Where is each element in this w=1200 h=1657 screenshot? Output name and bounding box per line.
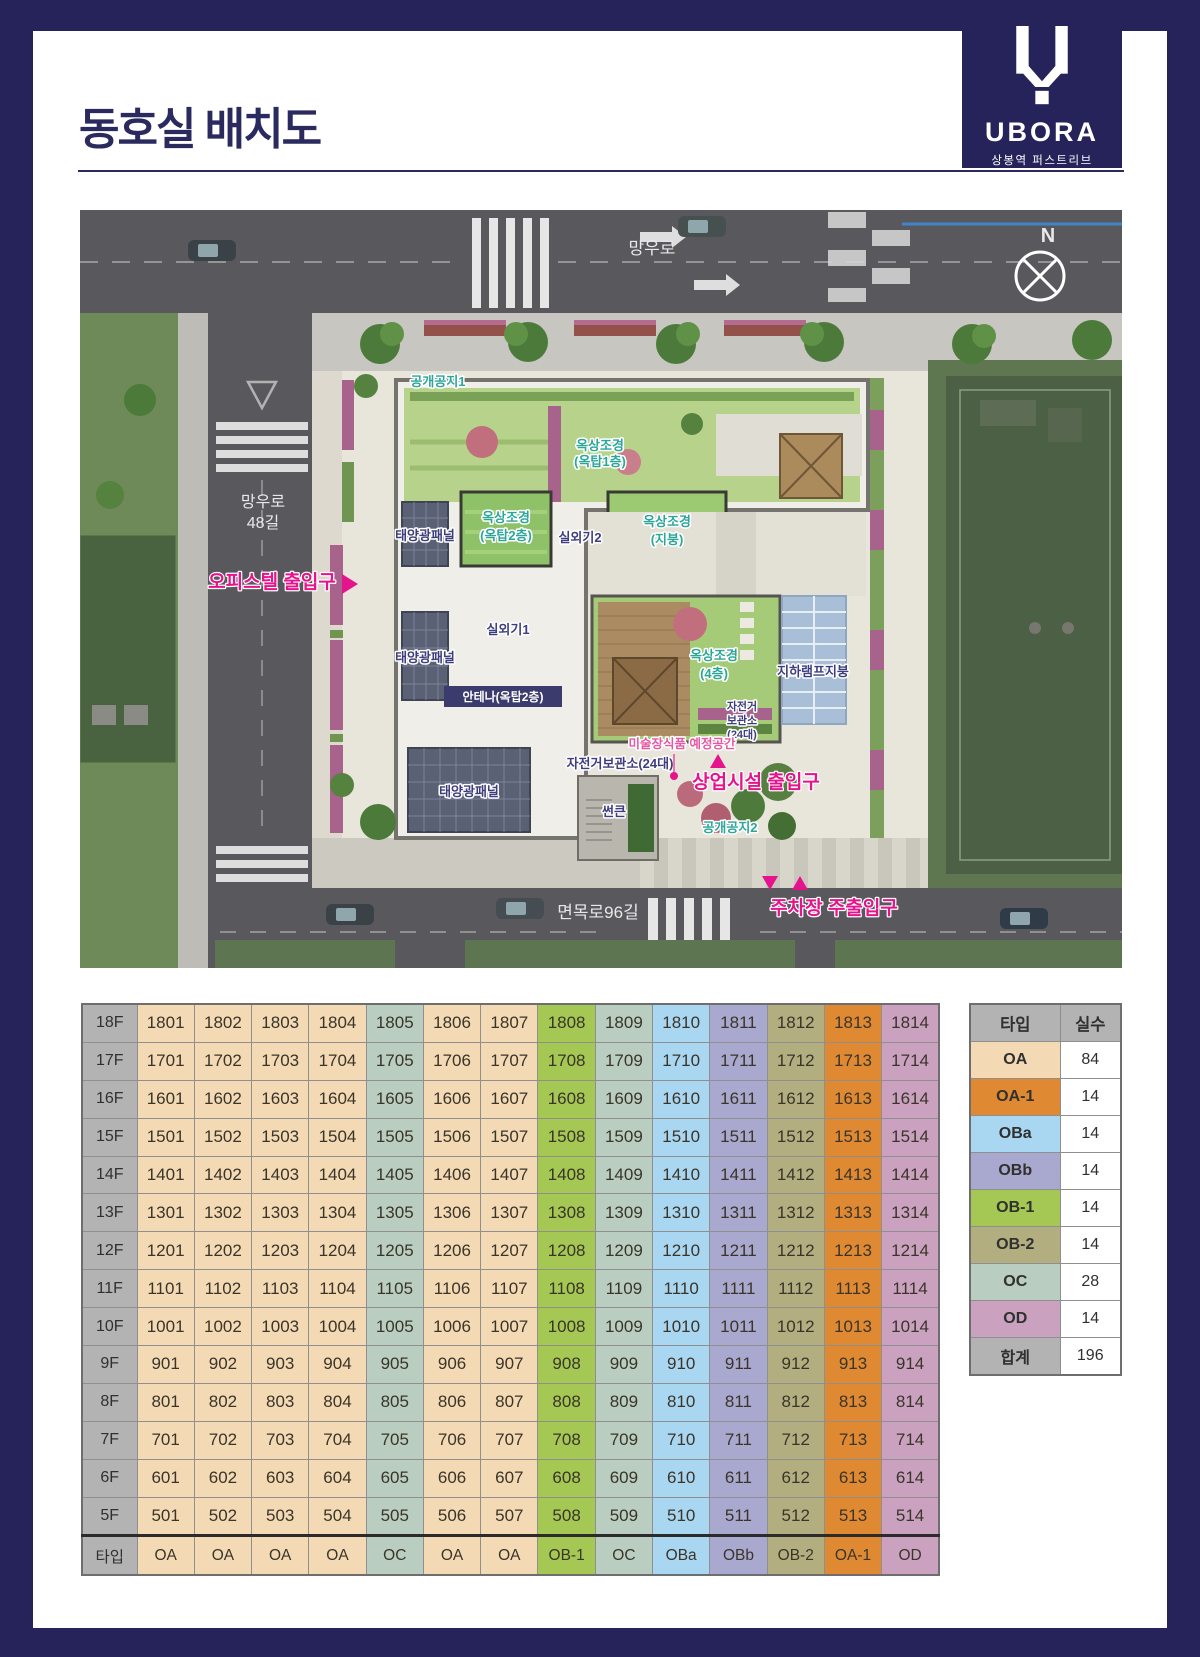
unit-cell: 1713: [824, 1042, 881, 1080]
unit-cell: 1401: [137, 1156, 194, 1194]
label-ac-unit-2: 실외기2: [558, 530, 601, 545]
unit-cell: 708: [538, 1421, 595, 1459]
unit-cell: 1302: [194, 1194, 251, 1232]
unit-cell: 1104: [309, 1270, 366, 1308]
unit-cell: 1808: [538, 1004, 595, 1042]
car: [188, 240, 236, 261]
legend-header-row: 타입 실수: [970, 1004, 1121, 1042]
legend-count-cell: 196: [1060, 1338, 1121, 1376]
unit-cell: 1509: [595, 1118, 652, 1156]
legend-row: OD14: [970, 1301, 1121, 1338]
label-roofgarden-4f-1: 옥상조경: [690, 648, 738, 663]
car: [326, 904, 374, 925]
unit-cell: 914: [882, 1346, 939, 1384]
unit-cell: 1106: [423, 1270, 480, 1308]
legend-row: 합계196: [970, 1338, 1121, 1376]
unit-cell: 807: [481, 1383, 538, 1421]
label-roofgarden-oktap1-2: (옥탑1층): [574, 454, 626, 469]
unit-cell: 1204: [309, 1232, 366, 1270]
unit-cell: 1603: [252, 1080, 309, 1118]
unit-cell: 502: [194, 1497, 251, 1536]
unit-cell: 1707: [481, 1042, 538, 1080]
floor-row: 17F1701170217031704170517061707170817091…: [82, 1042, 939, 1080]
legend-table-body: OA84OA-114OBa14OBb14OB-114OB-214OC28OD14…: [970, 1042, 1121, 1376]
unit-cell: 1314: [882, 1194, 939, 1232]
unit-cell: 1701: [137, 1042, 194, 1080]
unit-cell: 1205: [366, 1232, 423, 1270]
floor-label-cell: 6F: [82, 1459, 137, 1497]
unit-cell: 904: [309, 1346, 366, 1384]
label-parking-entrance: 주차장 주출입구: [770, 897, 898, 919]
unit-cell: 613: [824, 1459, 881, 1497]
car: [496, 898, 544, 919]
unit-table-body: 18F1801180218031804180518061807180818091…: [82, 1004, 939, 1575]
unit-cell: 503: [252, 1497, 309, 1536]
unit-cell: 1803: [252, 1004, 309, 1042]
label-roofgarden-roof-1: 옥상조경: [643, 514, 691, 529]
unit-cell: 504: [309, 1497, 366, 1536]
column-type-cell: OA: [481, 1536, 538, 1575]
court-left: [80, 535, 176, 763]
unit-cell: 1208: [538, 1232, 595, 1270]
unit-cell: 508: [538, 1497, 595, 1536]
title-underline: [78, 170, 1124, 172]
unit-cell: 1710: [653, 1042, 710, 1080]
unit-cell: 1307: [481, 1194, 538, 1232]
unit-cell: 1207: [481, 1232, 538, 1270]
unit-cell: 703: [252, 1421, 309, 1459]
unit-cell: 506: [423, 1497, 480, 1536]
unit-cell: 711: [710, 1421, 767, 1459]
column-type-cell: OC: [366, 1536, 423, 1575]
road-label-left-2: 48길: [247, 514, 280, 532]
unit-cell: 1109: [595, 1270, 652, 1308]
car: [1000, 908, 1048, 929]
unit-cell: 1511: [710, 1118, 767, 1156]
legend-count-cell: 28: [1060, 1264, 1121, 1301]
unit-cell: 804: [309, 1383, 366, 1421]
floor-row: 7F70170270370470570670770870971071171271…: [82, 1421, 939, 1459]
road-label-bottom: 면목로96길: [557, 903, 638, 922]
legend-count-cell: 84: [1060, 1042, 1121, 1079]
label-solar-1: 태양광패널: [395, 528, 455, 543]
unit-cell: 1308: [538, 1194, 595, 1232]
unit-cell: 707: [481, 1421, 538, 1459]
unit-cell: 1806: [423, 1004, 480, 1042]
unit-cell: 1406: [423, 1156, 480, 1194]
unit-cell: 1705: [366, 1042, 423, 1080]
floor-row: 14F1401140214031404140514061407140814091…: [82, 1156, 939, 1194]
legend-type-cell: OB-1: [970, 1190, 1060, 1227]
art-space-dot: [670, 772, 678, 780]
unit-cell: 602: [194, 1459, 251, 1497]
unit-cell: 811: [710, 1383, 767, 1421]
unit-cell: 1804: [309, 1004, 366, 1042]
road-label-top: 망우로: [629, 239, 676, 258]
floor-label-cell: 9F: [82, 1346, 137, 1384]
column-type-cell: OBb: [710, 1536, 767, 1575]
brochure-page: 동호실 배치도: [0, 0, 1200, 1657]
label-solar-2: 태양광패널: [395, 650, 455, 665]
entrance-paving: [640, 838, 928, 890]
unit-cell: 1108: [538, 1270, 595, 1308]
unit-cell: 801: [137, 1383, 194, 1421]
unit-cell: 1102: [194, 1270, 251, 1308]
legend-row: OBa14: [970, 1116, 1121, 1153]
unit-cell: 1012: [767, 1308, 824, 1346]
unit-cell: 909: [595, 1346, 652, 1384]
unit-cell: 1605: [366, 1080, 423, 1118]
unit-cell: 1508: [538, 1118, 595, 1156]
unit-cell: 1405: [366, 1156, 423, 1194]
unit-cell: 1704: [309, 1042, 366, 1080]
unit-cell: 1610: [653, 1080, 710, 1118]
unit-cell: 601: [137, 1459, 194, 1497]
unit-cell: 902: [194, 1346, 251, 1384]
floor-row: 15F1501150215031504150515061507150815091…: [82, 1118, 939, 1156]
legend-count-cell: 14: [1060, 1190, 1121, 1227]
crosswalk-left-road-2: [216, 846, 308, 882]
floor-label-cell: 16F: [82, 1080, 137, 1118]
unit-cell: 1011: [710, 1308, 767, 1346]
legend-type-cell: OB-2: [970, 1227, 1060, 1264]
column-type-cell: OA: [309, 1536, 366, 1575]
unit-cell: 1001: [137, 1308, 194, 1346]
unit-cell: 510: [653, 1497, 710, 1536]
unit-cell: 1609: [595, 1080, 652, 1118]
unit-cell: 612: [767, 1459, 824, 1497]
unit-cell: 813: [824, 1383, 881, 1421]
type-row: 타입OAOAOAOAOCOAOAOB-1OCOBaOBbOB-2OA-1OD: [82, 1536, 939, 1575]
unit-cell: 1502: [194, 1118, 251, 1156]
unit-cell: 1807: [481, 1004, 538, 1042]
floor-row: 12F1201120212031204120512061207120812091…: [82, 1232, 939, 1270]
unit-cell: 806: [423, 1383, 480, 1421]
column-type-cell: OA: [194, 1536, 251, 1575]
legend-type-cell: OBa: [970, 1116, 1060, 1153]
unit-cell: 605: [366, 1459, 423, 1497]
hedge-strip-right: [870, 378, 884, 838]
floor-row: 18F1801180218031804180518061807180818091…: [82, 1004, 939, 1042]
label-roofgarden-4f-2: (4층): [700, 666, 728, 681]
floor-label-cell: 17F: [82, 1042, 137, 1080]
label-public-space-2: 공개공지2: [702, 820, 757, 835]
unit-cell: 1814: [882, 1004, 939, 1042]
unit-cell: 1712: [767, 1042, 824, 1080]
unit-cell: 1809: [595, 1004, 652, 1042]
legend-row: OC28: [970, 1264, 1121, 1301]
unit-cell: 1112: [767, 1270, 824, 1308]
unit-cell: 1007: [481, 1308, 538, 1346]
legend-count-cell: 14: [1060, 1116, 1121, 1153]
unit-cell: 1606: [423, 1080, 480, 1118]
unit-cell: 1303: [252, 1194, 309, 1232]
unit-cell: 1202: [194, 1232, 251, 1270]
legend-header-count: 실수: [1060, 1004, 1121, 1042]
unit-cell: 1002: [194, 1308, 251, 1346]
unit-cell: 911: [710, 1346, 767, 1384]
unit-cell: 1301: [137, 1194, 194, 1232]
unit-cell: 1105: [366, 1270, 423, 1308]
unit-cell: 1003: [252, 1308, 309, 1346]
unit-cell: 1111: [710, 1270, 767, 1308]
floor-row: 6F60160260360460560660760860961061161261…: [82, 1459, 939, 1497]
unit-cell: 1507: [481, 1118, 538, 1156]
site-plan-map: N 망우로 망우로 48길 면목로96길 공개공지1 옥상조경 (옥탑1층) 옥…: [80, 210, 1122, 968]
unit-cell: 505: [366, 1497, 423, 1536]
unit-cell: 1504: [309, 1118, 366, 1156]
courtyard-stripe: [716, 512, 756, 596]
floor-label-cell: 18F: [82, 1004, 137, 1042]
column-type-cell: OBa: [653, 1536, 710, 1575]
unit-cell: 1812: [767, 1004, 824, 1042]
unit-cell: 1311: [710, 1194, 767, 1232]
unit-cell: 1613: [824, 1080, 881, 1118]
unit-cell: 907: [481, 1346, 538, 1384]
floor-row: 11F1101110211031104110511061107110811091…: [82, 1270, 939, 1308]
unit-cell: 512: [767, 1497, 824, 1536]
unit-cell: 1107: [481, 1270, 538, 1308]
unit-cell: 1801: [137, 1004, 194, 1042]
field-dot: [1029, 622, 1041, 634]
unit-cell: 1410: [653, 1156, 710, 1194]
unit-cell: 705: [366, 1421, 423, 1459]
column-type-cell: OD: [882, 1536, 939, 1575]
unit-cell: 1103: [252, 1270, 309, 1308]
sidewalk-left: [178, 313, 208, 968]
unit-cell: 1114: [882, 1270, 939, 1308]
label-art-space: 미술장식품 예정공간: [629, 736, 736, 751]
legend-header-type: 타입: [970, 1004, 1060, 1042]
unit-cell: 1409: [595, 1156, 652, 1194]
unit-cell: 1414: [882, 1156, 939, 1194]
label-bike-storage-2-2: 보관소: [727, 713, 757, 727]
unit-cell: 1411: [710, 1156, 767, 1194]
car: [678, 216, 726, 237]
unit-cell: 1101: [137, 1270, 194, 1308]
label-sunken: 썬큰: [602, 804, 626, 819]
unit-cell: 710: [653, 1421, 710, 1459]
unit-cell: 1404: [309, 1156, 366, 1194]
label-ramp-roof: 지하램프지붕: [777, 664, 849, 679]
label-retail-entrance: 상업시설 출입구: [692, 771, 820, 793]
column-type-cell: OB-2: [767, 1536, 824, 1575]
unit-cell: 1503: [252, 1118, 309, 1156]
unit-cell: 1706: [423, 1042, 480, 1080]
unit-cell: 802: [194, 1383, 251, 1421]
unit-cell: 1305: [366, 1194, 423, 1232]
unit-cell: 908: [538, 1346, 595, 1384]
unit-cell: 1702: [194, 1042, 251, 1080]
brand-logo-box: UBORA 상봉역 퍼스트리브: [962, 0, 1122, 168]
unit-cell: 1009: [595, 1308, 652, 1346]
unit-cell: 809: [595, 1383, 652, 1421]
unit-cell: 1004: [309, 1308, 366, 1346]
unit-cell: 1711: [710, 1042, 767, 1080]
unit-cell: 1611: [710, 1080, 767, 1118]
floor-row: 13F1301130213031304130513061307130813091…: [82, 1194, 939, 1232]
floor-label-cell: 12F: [82, 1232, 137, 1270]
unit-cell: 1210: [653, 1232, 710, 1270]
unit-cell: 1612: [767, 1080, 824, 1118]
unit-cell: 1209: [595, 1232, 652, 1270]
unit-cell: 1214: [882, 1232, 939, 1270]
unit-cell: 1811: [710, 1004, 767, 1042]
legend-count-cell: 14: [1060, 1301, 1121, 1338]
unit-cell: 1604: [309, 1080, 366, 1118]
floor-label-cell: 10F: [82, 1308, 137, 1346]
column-type-cell: OA-1: [824, 1536, 881, 1575]
unit-cell: 808: [538, 1383, 595, 1421]
unit-cell: 1802: [194, 1004, 251, 1042]
unit-cell: 901: [137, 1346, 194, 1384]
unit-cell: 1703: [252, 1042, 309, 1080]
road-label-left-1: 망우로: [241, 493, 285, 511]
unit-cell: 906: [423, 1346, 480, 1384]
unit-cell: 1407: [481, 1156, 538, 1194]
unit-cell: 609: [595, 1459, 652, 1497]
legend-type-cell: OA-1: [970, 1079, 1060, 1116]
unit-cell: 1506: [423, 1118, 480, 1156]
legend-row: OA84: [970, 1042, 1121, 1079]
label-roofgarden-oktap2-2: (옥탑2층): [480, 528, 532, 543]
unit-cell: 614: [882, 1459, 939, 1497]
unit-cell: 1602: [194, 1080, 251, 1118]
unit-cell: 1412: [767, 1156, 824, 1194]
unit-cell: 604: [309, 1459, 366, 1497]
floor-row: 16F1601160216031604160516061607160816091…: [82, 1080, 939, 1118]
unit-cell: 1312: [767, 1194, 824, 1232]
brand-name: UBORA: [985, 117, 1099, 148]
column-type-cell: OA: [423, 1536, 480, 1575]
unit-cell: 1601: [137, 1080, 194, 1118]
floor-label-cell: 13F: [82, 1194, 137, 1232]
unit-cell: 810: [653, 1383, 710, 1421]
unit-cell: 1403: [252, 1156, 309, 1194]
legend-row: OB-114: [970, 1190, 1121, 1227]
unit-cell: 1607: [481, 1080, 538, 1118]
unit-cell: 1813: [824, 1004, 881, 1042]
unit-cell: 1212: [767, 1232, 824, 1270]
ubora-logo-icon: [1014, 26, 1070, 108]
legend-type-cell: OD: [970, 1301, 1060, 1338]
unit-cell: 1408: [538, 1156, 595, 1194]
unit-cell: 1805: [366, 1004, 423, 1042]
unit-cell: 514: [882, 1497, 939, 1536]
unit-cell: 606: [423, 1459, 480, 1497]
unit-cell: 1203: [252, 1232, 309, 1270]
unit-cell: 608: [538, 1459, 595, 1497]
label-ac-unit-1: 실외기1: [486, 622, 529, 637]
unit-cell: 814: [882, 1383, 939, 1421]
unit-cell: 1402: [194, 1156, 251, 1194]
unit-cell: 1514: [882, 1118, 939, 1156]
unit-cell: 1304: [309, 1194, 366, 1232]
field-equipment: [1048, 408, 1082, 442]
unit-cell: 713: [824, 1421, 881, 1459]
unit-cell: 1614: [882, 1080, 939, 1118]
unit-cell: 509: [595, 1497, 652, 1536]
label-solar-3: 태양광패널: [439, 784, 499, 799]
unit-cell: 1608: [538, 1080, 595, 1118]
unit-cell: 1013: [824, 1308, 881, 1346]
floor-label-cell: 14F: [82, 1156, 137, 1194]
unit-cell: 1810: [653, 1004, 710, 1042]
north-label: N: [1041, 225, 1055, 247]
label-roofgarden-oktap1-1: 옥상조경: [576, 438, 624, 453]
legend-count-cell: 14: [1060, 1079, 1121, 1116]
unit-cell: 1709: [595, 1042, 652, 1080]
unit-cell: 1309: [595, 1194, 652, 1232]
field-equipment: [980, 400, 1036, 426]
roof-garden-top: [404, 388, 862, 502]
floor-row: 8F80180280380480580680780880981081181281…: [82, 1383, 939, 1421]
legend-count-cell: 14: [1060, 1153, 1121, 1190]
label-roofgarden-roof-2: (지붕): [651, 532, 684, 547]
floor-row: 10F1001100210031004100510061007100810091…: [82, 1308, 939, 1346]
unit-cell: 1014: [882, 1308, 939, 1346]
legend-row: OBb14: [970, 1153, 1121, 1190]
unit-cell: 709: [595, 1421, 652, 1459]
unit-cell: 805: [366, 1383, 423, 1421]
unit-cell: 903: [252, 1346, 309, 1384]
unit-cell: 610: [653, 1459, 710, 1497]
unit-cell: 912: [767, 1346, 824, 1384]
floor-row: 5F50150250350450550650750850951051151251…: [82, 1497, 939, 1536]
unit-cell: 1313: [824, 1194, 881, 1232]
unit-cell: 501: [137, 1497, 194, 1536]
unit-cell: 1512: [767, 1118, 824, 1156]
legend-type-cell: OA: [970, 1042, 1060, 1079]
content-area: 동호실 배치도: [33, 31, 1167, 1628]
unit-cell: 1505: [366, 1118, 423, 1156]
unit-cell: 1201: [137, 1232, 194, 1270]
unit-cell: 910: [653, 1346, 710, 1384]
equipment-box: [92, 705, 116, 725]
unit-cell: 1513: [824, 1118, 881, 1156]
unit-cell: 1708: [538, 1042, 595, 1080]
unit-cell: 1006: [423, 1308, 480, 1346]
unit-cell: 1306: [423, 1194, 480, 1232]
label-roofgarden-oktap2-1: 옥상조경: [482, 510, 530, 525]
brand-subtitle: 상봉역 퍼스트리브: [991, 152, 1092, 168]
type-row-header-cell: 타입: [82, 1536, 137, 1575]
label-officetel-entrance: 오피스텔 출입구: [208, 571, 336, 593]
unit-cell: 507: [481, 1497, 538, 1536]
unit-cell: 603: [252, 1459, 309, 1497]
legend-count-cell: 14: [1060, 1227, 1121, 1264]
unit-cell: 1501: [137, 1118, 194, 1156]
page-title: 동호실 배치도: [79, 93, 320, 157]
column-type-cell: OA: [252, 1536, 309, 1575]
field-dot: [1062, 622, 1074, 634]
unit-cell: 803: [252, 1383, 309, 1421]
unit-cell: 1413: [824, 1156, 881, 1194]
unit-table: 18F1801180218031804180518061807180818091…: [81, 1003, 940, 1576]
legend-type-cell: OBb: [970, 1153, 1060, 1190]
legend-type-cell: OC: [970, 1264, 1060, 1301]
unit-cell: 714: [882, 1421, 939, 1459]
unit-cell: 1113: [824, 1270, 881, 1308]
label-bike-storage-1: 자전거보관소(24대): [567, 756, 674, 771]
unit-cell: 513: [824, 1497, 881, 1536]
legend-type-cell: 합계: [970, 1338, 1060, 1376]
unit-cell: 812: [767, 1383, 824, 1421]
floor-label-cell: 15F: [82, 1118, 137, 1156]
unit-cell: 1005: [366, 1308, 423, 1346]
unit-cell: 712: [767, 1421, 824, 1459]
floor-label-cell: 11F: [82, 1270, 137, 1308]
